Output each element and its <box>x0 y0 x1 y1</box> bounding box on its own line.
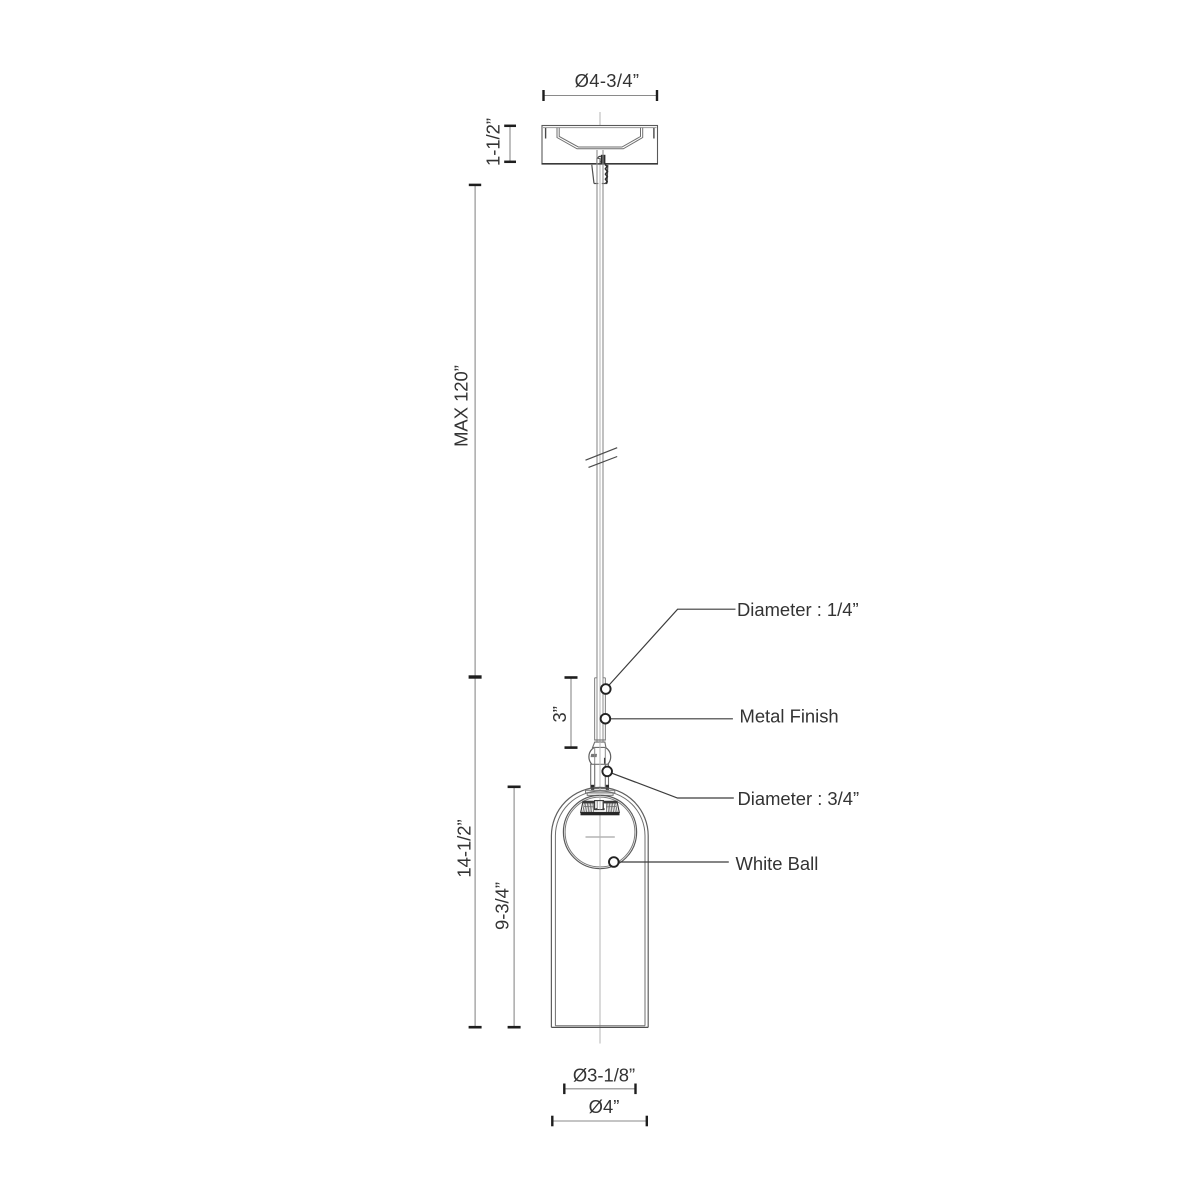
svg-text:1-1/2”: 1-1/2” <box>483 118 504 166</box>
svg-text:Ø4”: Ø4” <box>589 1096 620 1117</box>
svg-text:White Ball: White Ball <box>736 853 819 874</box>
svg-text:Metal Finish: Metal Finish <box>740 705 839 726</box>
svg-text:MAX 120”: MAX 120” <box>450 365 471 447</box>
svg-text:Diameter : 3/4”: Diameter : 3/4” <box>738 788 860 809</box>
svg-text:Ø4-3/4”: Ø4-3/4” <box>575 70 640 91</box>
svg-text:Ø3-1/8”: Ø3-1/8” <box>573 1065 635 1086</box>
svg-text:14-1/2”: 14-1/2” <box>454 819 475 877</box>
svg-text:Diameter : 1/4”: Diameter : 1/4” <box>737 599 859 620</box>
svg-text:9-3/4”: 9-3/4” <box>492 882 513 930</box>
svg-text:3”: 3” <box>549 706 570 722</box>
